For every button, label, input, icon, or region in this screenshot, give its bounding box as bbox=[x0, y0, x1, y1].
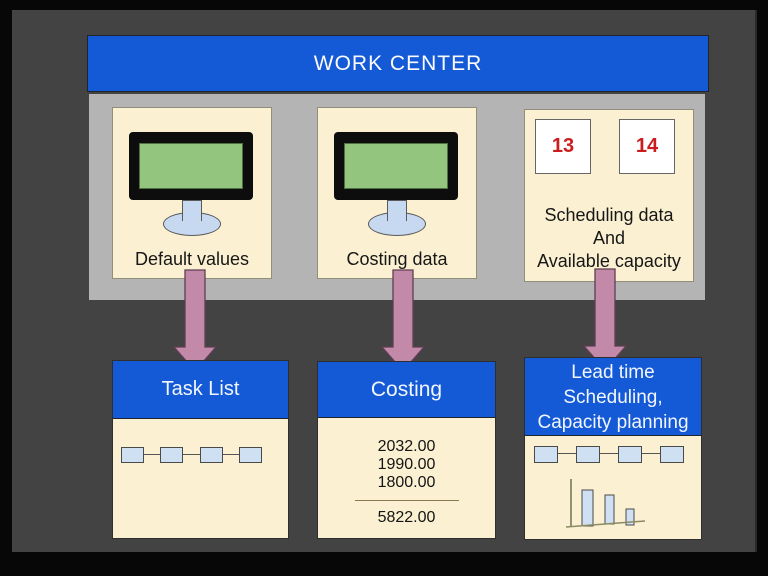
machine-label: Scheduling data And Available capacity bbox=[525, 204, 693, 273]
output-card-task-list: Task List bbox=[112, 360, 289, 539]
task-list-header: Task List bbox=[113, 361, 288, 419]
chain-step-box bbox=[534, 446, 558, 463]
machine-label: Default values bbox=[113, 249, 271, 270]
monitor-screen bbox=[139, 143, 243, 189]
down-arrow-icon bbox=[171, 269, 219, 373]
monitor-screen bbox=[344, 143, 448, 189]
chain-step-box bbox=[121, 447, 144, 463]
sum-rule-line bbox=[355, 500, 459, 501]
output-card-costing: Costing 2032.00 1990.00 1800.00 5822.00 bbox=[317, 361, 496, 539]
process-chain-icon bbox=[121, 447, 262, 463]
diagram-background: WORK CENTER Default values bbox=[12, 10, 757, 552]
machine-card-scheduling: 13 14 Scheduling data And Available capa… bbox=[524, 109, 694, 282]
work-center-number-badge: 14 bbox=[619, 119, 675, 174]
lead-time-header: Lead time Scheduling, Capacity planning bbox=[525, 358, 701, 436]
machine-card-default-values: Default values bbox=[112, 107, 272, 279]
monitor-frame bbox=[334, 132, 458, 200]
bar-chart-icon bbox=[563, 476, 655, 532]
costing-figures: 2032.00 1990.00 1800.00 5822.00 bbox=[318, 417, 495, 527]
costing-header: Costing bbox=[318, 362, 495, 418]
chain-step-box bbox=[618, 446, 642, 463]
diagram-canvas: WORK CENTER Default values bbox=[0, 0, 768, 576]
machine-label: Costing data bbox=[318, 249, 476, 270]
monitor-stand bbox=[387, 200, 407, 221]
chain-step-box bbox=[576, 446, 600, 463]
monitor-stand bbox=[182, 200, 202, 221]
costing-value: 1800.00 bbox=[318, 474, 495, 492]
chain-step-box bbox=[239, 447, 262, 463]
work-center-number-badge: 13 bbox=[535, 119, 591, 174]
work-center-title: WORK CENTER bbox=[314, 52, 483, 76]
chain-step-box bbox=[660, 446, 684, 463]
machine-card-costing-data: Costing data bbox=[317, 107, 477, 279]
chain-step-box bbox=[160, 447, 183, 463]
monitor-frame bbox=[129, 132, 253, 200]
costing-value: 2032.00 bbox=[318, 438, 495, 456]
chain-step-box bbox=[200, 447, 223, 463]
process-chain-icon bbox=[534, 446, 684, 462]
costing-value: 1990.00 bbox=[318, 456, 495, 474]
output-card-lead-time-scheduling: Lead time Scheduling, Capacity planning bbox=[524, 357, 702, 540]
down-arrow-icon bbox=[379, 269, 427, 373]
costing-total: 5822.00 bbox=[318, 509, 495, 527]
work-center-header: WORK CENTER bbox=[87, 35, 709, 92]
